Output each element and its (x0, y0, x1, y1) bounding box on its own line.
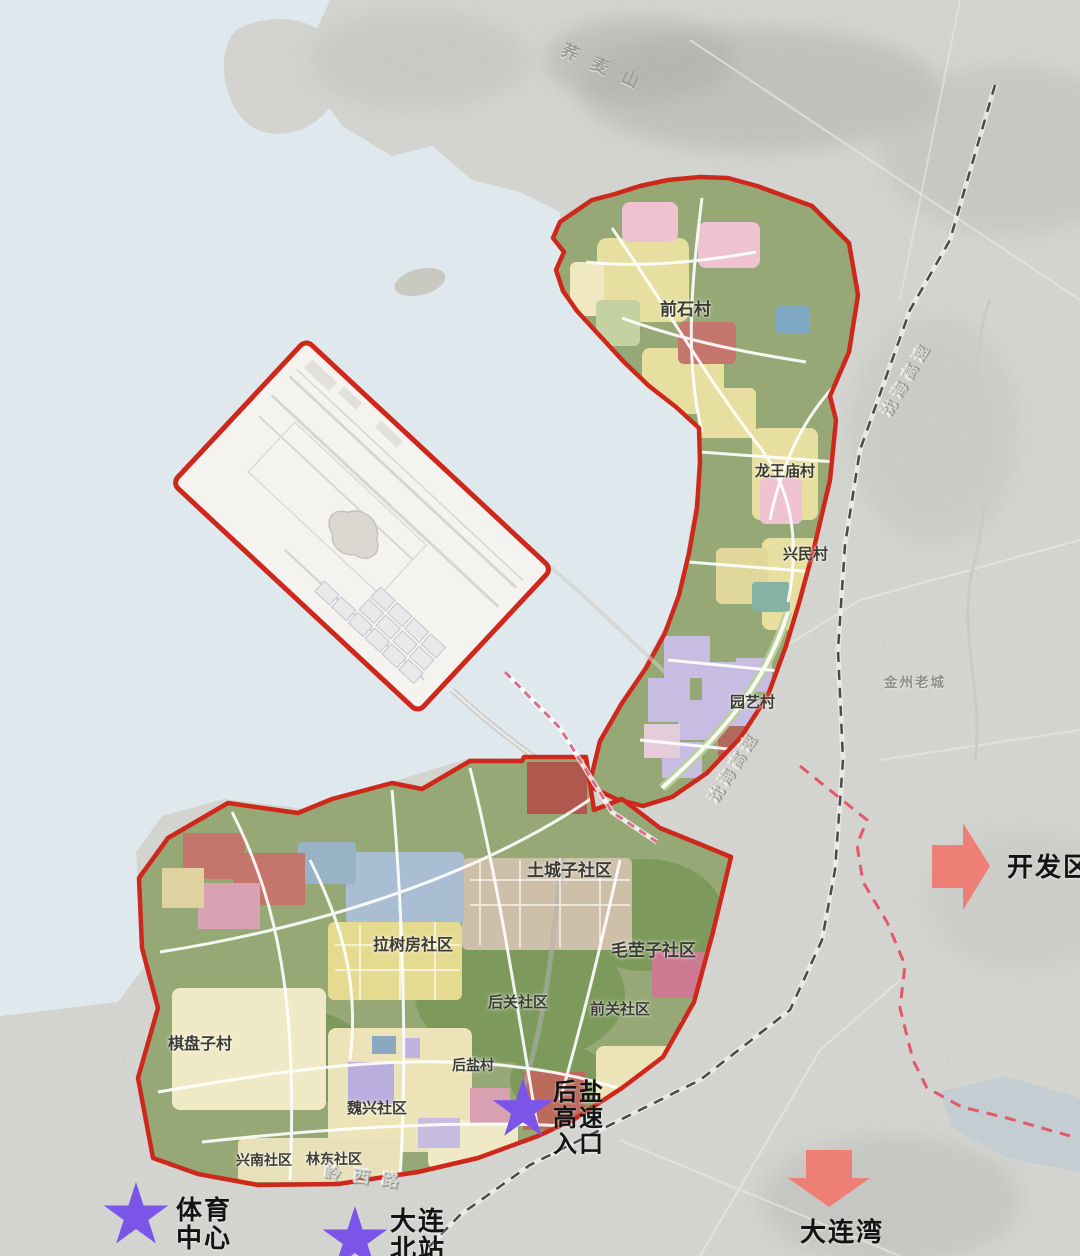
map-canvas (0, 0, 1080, 1256)
planning-map: 前石村 龙王庙村 兴民村 园艺村 土城子社区 拉树房社区 毛茔子社区 后关社区 … (0, 0, 1080, 1256)
